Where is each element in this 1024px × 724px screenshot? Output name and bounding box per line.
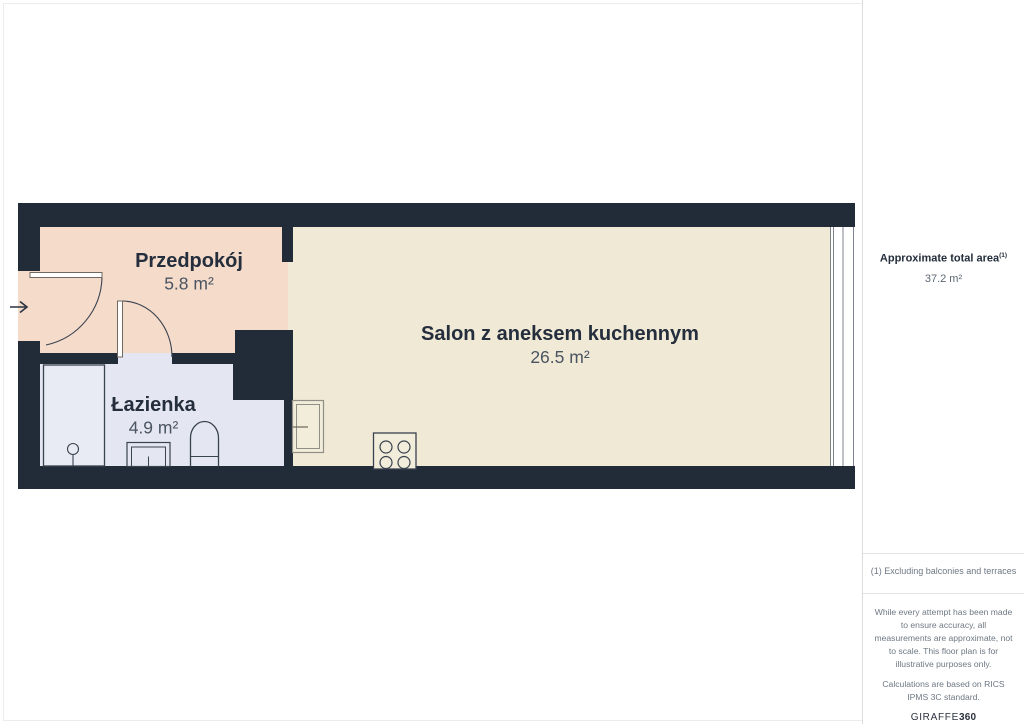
disclaimer-standard: Calculations are based on RICS IPMS 3C s…	[874, 678, 1013, 704]
hallway-area: 5.8 m²	[164, 274, 214, 294]
disclaimer-accuracy: While every attempt has been made to ens…	[874, 606, 1013, 671]
total-area-value: 37.2 m²	[863, 273, 1024, 285]
living-room-area: 26.5 m²	[530, 347, 589, 367]
bathroom-label: Łazienka	[111, 394, 196, 416]
giraffe360-logo-number: 360	[959, 712, 976, 723]
sidebar-divider-bottom	[863, 593, 1024, 594]
bathroom-door-gap	[118, 353, 172, 364]
fridge-icon	[293, 401, 324, 453]
sidebar-divider-top	[863, 553, 1024, 554]
window-icon	[830, 227, 855, 466]
entrance-recess	[18, 271, 40, 341]
floor-plan-canvas: Przedpokój 5.8 m² Salon z aneksem kuchen…	[0, 0, 862, 724]
stove-icon	[374, 433, 417, 469]
floor-plan-page: Przedpokój 5.8 m² Salon z aneksem kuchen…	[0, 0, 1024, 724]
bathroom-area: 4.9 m²	[129, 418, 179, 438]
info-sidebar: Approximate total area(1) 37.2 m² (1) Ex…	[862, 0, 1024, 724]
living-room-label: Salon z aneksem kuchennym	[421, 323, 699, 345]
giraffe360-logo: GIRAFFE360	[874, 711, 1013, 724]
total-area-label: Approximate total area(1)	[863, 252, 1024, 265]
total-area-block: Approximate total area(1) 37.2 m²	[863, 252, 1024, 285]
footnote-text: (1) Excluding balconies and terraces	[863, 566, 1024, 576]
total-area-label-text: Approximate total area	[880, 253, 999, 265]
floor-plan-drawing: Przedpokój 5.8 m² Salon z aneksem kuchen…	[0, 0, 862, 724]
hallway-label: Przedpokój	[135, 250, 243, 272]
giraffe360-logo-name: GIRAFFE	[911, 712, 959, 723]
footnote-marker: (1)	[999, 252, 1007, 259]
disclaimer-block: While every attempt has been made to ens…	[874, 606, 1013, 724]
bathtub-icon	[44, 365, 105, 466]
